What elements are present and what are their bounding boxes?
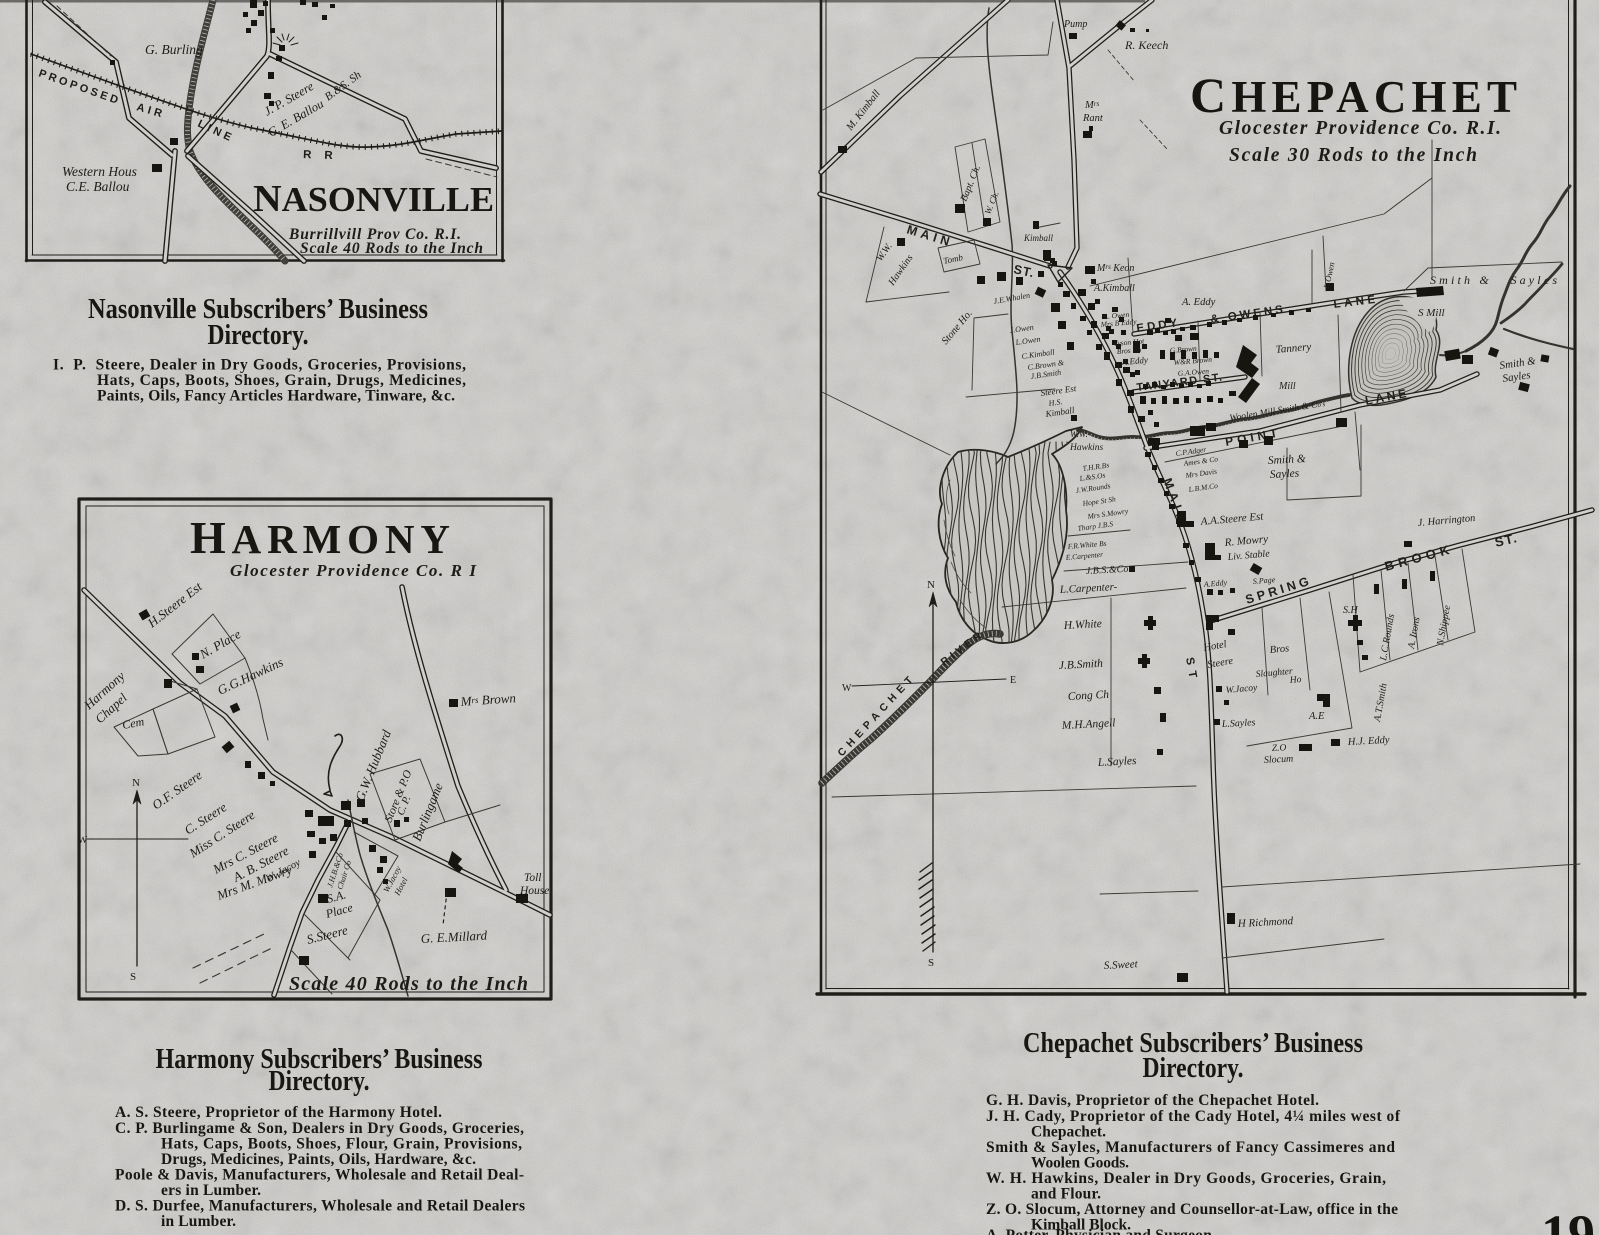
svg-text:C.E. Ballou: C.E. Ballou bbox=[66, 179, 130, 194]
svg-text:NASONVILLE: NASONVILLE bbox=[253, 178, 494, 220]
svg-text:Kimball: Kimball bbox=[1023, 233, 1054, 243]
svg-text:S.Sweet: S.Sweet bbox=[1104, 958, 1139, 972]
svg-text:I. P. Steere, Dealer in Dry: I. P. Steere, Dealer in Dry Goods, Groce… bbox=[53, 357, 466, 374]
svg-text:G. Burling: G. Burling bbox=[145, 42, 203, 57]
svg-text:Woolen Goods.: Woolen Goods. bbox=[1031, 1155, 1129, 1172]
svg-text:19: 19 bbox=[1541, 1204, 1595, 1235]
svg-text:E: E bbox=[1010, 675, 1016, 686]
svg-text:Hats, Caps, Boots, Shoes, Flou: Hats, Caps, Boots, Shoes, Flour, Grain, … bbox=[161, 1136, 522, 1153]
svg-text:S.H: S.H bbox=[1343, 605, 1359, 616]
svg-text:N: N bbox=[927, 579, 935, 591]
svg-text:G. H. Davis, Proprietor of the: G. H. Davis, Proprietor of the Chepachet… bbox=[986, 1092, 1319, 1109]
svg-text:Poole & Davis, Manufacturers,: Poole & Davis, Manufacturers, Wholesale … bbox=[115, 1167, 524, 1184]
svg-text:J.B.Smith: J.B.Smith bbox=[1059, 658, 1104, 672]
svg-text:S: S bbox=[130, 971, 136, 983]
svg-text:H.J. Eddy: H.J. Eddy bbox=[1347, 735, 1391, 748]
svg-text:Slocum: Slocum bbox=[1264, 753, 1294, 766]
svg-text:A. S. Steere, Proprietor of th: A. S. Steere, Proprietor of the Harmony … bbox=[115, 1104, 442, 1121]
svg-text:Chepachet.: Chepachet. bbox=[1031, 1124, 1106, 1141]
svg-text:D. S. Durfee, Manufacturers, W: D. S. Durfee, Manufacturers, Wholesale a… bbox=[115, 1198, 525, 1215]
svg-text:J. H. Cady, Proprietor of the: J. H. Cady, Proprietor of the Cady Hotel… bbox=[986, 1108, 1401, 1125]
svg-text:S: S bbox=[928, 957, 934, 969]
svg-text:Z.O: Z.O bbox=[1272, 743, 1287, 754]
svg-text:R. Keech: R. Keech bbox=[1124, 38, 1168, 52]
svg-text:W: W bbox=[78, 835, 88, 846]
svg-text:and Flour.: and Flour. bbox=[1031, 1186, 1101, 1203]
svg-text:Bros: Bros bbox=[1269, 643, 1289, 656]
svg-text:Smith & Sayles, Manufacturers: Smith & Sayles, Manufacturers of Fancy C… bbox=[986, 1139, 1395, 1156]
svg-text:Scale 40 Rods to the Inch: Scale 40 Rods to the Inch bbox=[300, 240, 483, 257]
svg-text:ers in Lumber.: ers in Lumber. bbox=[161, 1182, 261, 1199]
svg-text:Sayles: Sayles bbox=[1270, 467, 1300, 481]
svg-text:W: W bbox=[842, 683, 852, 694]
svg-text:CHEPACHET: CHEPACHET bbox=[1190, 67, 1517, 123]
svg-text:W.W.: W.W. bbox=[1070, 429, 1088, 439]
svg-text:Glocester Providence Co. R I: Glocester Providence Co. R I bbox=[230, 561, 477, 580]
svg-text:S Mill: S Mill bbox=[1418, 307, 1445, 319]
svg-text:Toll: Toll bbox=[524, 872, 541, 884]
svg-text:Scale 40 Rods to the Inch: Scale 40 Rods to the Inch bbox=[289, 973, 528, 995]
svg-text:Western Hous: Western Hous bbox=[62, 164, 137, 179]
svg-text:Hats, Caps, Boots, Shoes, Grai: Hats, Caps, Boots, Shoes, Grain, Drugs, … bbox=[97, 372, 466, 389]
svg-text:A. Eddy: A. Eddy bbox=[1181, 297, 1216, 308]
svg-text:Directory.: Directory. bbox=[208, 319, 309, 351]
svg-text:Mill: Mill bbox=[1278, 381, 1296, 392]
svg-text:W. H. Hawkins, Dealer in Dry G: W. H. Hawkins, Dealer in Dry Goods, Groc… bbox=[986, 1170, 1386, 1187]
svg-text:Hawkins: Hawkins bbox=[1069, 443, 1104, 453]
svg-text:Directory.: Directory. bbox=[269, 1065, 370, 1097]
svg-text:Scale 30 Rods to the Inch: Scale 30 Rods to the Inch bbox=[1229, 145, 1477, 166]
svg-text:House: House bbox=[519, 885, 549, 897]
svg-text:Directory.: Directory. bbox=[1143, 1052, 1244, 1084]
svg-text:Drugs, Medicines, Paints, Oils: Drugs, Medicines, Paints, Oils, Hardware… bbox=[161, 1151, 476, 1168]
svg-text:Mrs Keon: Mrs Keon bbox=[1096, 263, 1134, 274]
svg-text:N: N bbox=[132, 777, 140, 789]
svg-text:Pump: Pump bbox=[1063, 19, 1087, 30]
svg-text:Z. O. Slocum, Attorney and Cou: Z. O. Slocum, Attorney and Counsellor-at… bbox=[986, 1201, 1398, 1218]
svg-text:in Lumber.: in Lumber. bbox=[161, 1213, 236, 1230]
svg-text:A. Potter, Physician and Surge: A. Potter, Physician and Surgeon. bbox=[986, 1227, 1216, 1235]
svg-text:Rant: Rant bbox=[1082, 113, 1104, 124]
svg-text:L.Sayles: L.Sayles bbox=[1221, 717, 1256, 730]
svg-text:Ho: Ho bbox=[1288, 675, 1302, 686]
svg-text:RR: RR bbox=[303, 149, 346, 162]
svg-text:A.Kimball: A.Kimball bbox=[1093, 283, 1135, 294]
svg-text:A.E: A.E bbox=[1308, 711, 1325, 722]
svg-text:L.Sayles: L.Sayles bbox=[1097, 755, 1138, 769]
svg-text:H.White: H.White bbox=[1063, 618, 1103, 632]
svg-text:Glocester Providence Co. R.I.: Glocester Providence Co. R.I. bbox=[1219, 118, 1501, 139]
svg-text:J.B.S.&Co: J.B.S.&Co bbox=[1086, 564, 1129, 577]
svg-text:Cong Ch: Cong Ch bbox=[1068, 689, 1110, 703]
svg-text:C. P. Burlingame & Son, Dealer: C. P. Burlingame & Son, Dealers in Dry G… bbox=[115, 1120, 524, 1137]
svg-text:Paints, Oils, Fancy Articles H: Paints, Oils, Fancy Articles Hardware, T… bbox=[97, 388, 455, 405]
svg-text:Smith &: Smith & bbox=[1268, 453, 1307, 467]
